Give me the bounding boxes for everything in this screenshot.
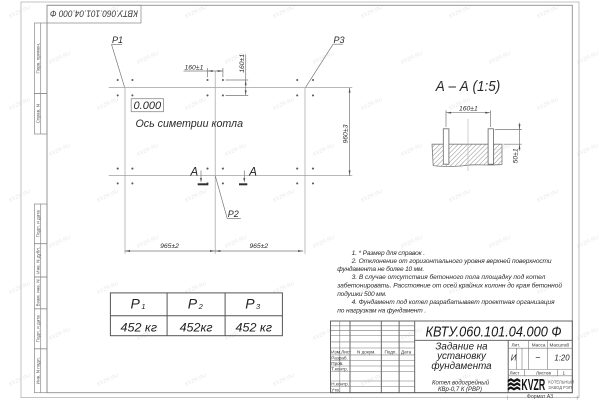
svg-text:Инв. N подл.: Инв. N подл. <box>35 357 40 384</box>
svg-text:KVZR.RU: KVZR.RU <box>400 235 423 250</box>
svg-text:Инв. N дубл.: Инв. N дубл. <box>35 247 40 274</box>
svg-text:Р1: Р1 <box>131 296 146 312</box>
svg-text:–: – <box>535 353 541 362</box>
svg-text:KVZR.RU: KVZR.RU <box>184 5 207 20</box>
svg-text:KVZR.RU: KVZR.RU <box>48 143 71 158</box>
svg-text:Р2: Р2 <box>188 296 204 312</box>
svg-text:KVZR.RU: KVZR.RU <box>400 51 423 66</box>
svg-text:KVZR.RU: KVZR.RU <box>272 97 295 112</box>
svg-text:KVZR.RU: KVZR.RU <box>136 235 159 250</box>
svg-text:KVZR.RU: KVZR.RU <box>576 327 599 342</box>
svg-text:KVZR.RU: KVZR.RU <box>400 327 423 342</box>
svg-text:А – А (1:5): А – А (1:5) <box>435 79 500 95</box>
svg-text:Н.контр.: Н.контр. <box>331 381 349 386</box>
svg-text:KVZR.RU: KVZR.RU <box>184 97 207 112</box>
svg-text:Подп.: Подп. <box>385 349 397 354</box>
svg-text:А: А <box>190 167 199 179</box>
svg-text:И: И <box>511 354 517 363</box>
svg-text:KVZR.RU: KVZR.RU <box>536 5 559 20</box>
svg-text:забетонировать. Расстояние от: забетонировать. Расстояние от осей крайн… <box>336 282 562 290</box>
svg-text:Р3: Р3 <box>245 296 261 312</box>
svg-text:50±1: 50±1 <box>513 148 520 163</box>
svg-text:KVZR.RU: KVZR.RU <box>272 189 295 204</box>
svg-text:Лит.: Лит. <box>512 343 521 348</box>
svg-text:KVZR.RU: KVZR.RU <box>8 281 31 296</box>
svg-text:KVZR.RU: KVZR.RU <box>48 51 71 66</box>
svg-text:KVZR.RU: KVZR.RU <box>576 143 599 158</box>
svg-text:4. Фундамент под котел разраба: 4. Фундамент под котел разрабатывает про… <box>352 298 555 306</box>
svg-text:Изм.Лист: Изм.Лист <box>331 349 352 354</box>
svg-text:KVZR.RU: KVZR.RU <box>576 235 599 250</box>
svg-text:KVZR.RU: KVZR.RU <box>400 143 423 158</box>
svg-text:KVZR.RU: KVZR.RU <box>8 97 31 112</box>
svg-text:KVZR.RU: KVZR.RU <box>448 5 471 20</box>
svg-text:KVZR.RU: KVZR.RU <box>96 189 119 204</box>
svg-text:KVZR.RU: KVZR.RU <box>8 189 31 204</box>
svg-text:КВр-0,7 К (РВР): КВр-0,7 К (РВР) <box>438 387 482 393</box>
svg-text:965±2: 965±2 <box>249 243 268 250</box>
svg-text:1: 1 <box>563 370 566 375</box>
svg-text:KVZR.RU: KVZR.RU <box>360 97 383 112</box>
svg-text:KVZR.RU: KVZR.RU <box>488 235 511 250</box>
svg-text:1:20: 1:20 <box>554 354 570 363</box>
svg-text:КОТЕЛЬНЫЙ: КОТЕЛЬНЫЙ <box>548 380 574 385</box>
svg-text:Листов: Листов <box>536 370 551 375</box>
svg-text:KVZR.RU: KVZR.RU <box>96 281 119 296</box>
svg-text:452кг: 452кг <box>180 320 213 334</box>
svg-text:Подп. и дата: Подп. и дата <box>35 315 40 343</box>
svg-text:Лист: Лист <box>510 370 521 375</box>
svg-text:KVZR.RU: KVZR.RU <box>576 51 599 66</box>
svg-text:KVZR.RU: KVZR.RU <box>8 373 31 388</box>
svg-text:KVZR.RU: KVZR.RU <box>272 281 295 296</box>
svg-text:160±1: 160±1 <box>239 54 246 73</box>
svg-text:Дата: Дата <box>401 349 412 354</box>
svg-text:Котел водогрейный: Котел водогрейный <box>432 379 490 386</box>
svg-text:Взам. инв. N: Взам. инв. N <box>35 279 40 306</box>
svg-text:KVZR.RU: KVZR.RU <box>272 373 295 388</box>
svg-text:Формат А3: Формат А3 <box>527 394 553 400</box>
svg-text:KVZR.RU: KVZR.RU <box>8 5 31 20</box>
svg-text:фундамента не более 10 мм.: фундамента не более 10 мм. <box>337 265 424 273</box>
svg-text:Т.контр.: Т.контр. <box>331 366 348 371</box>
svg-text:KVZR.RU: KVZR.RU <box>536 97 559 112</box>
svg-text:KVZR.RU: KVZR.RU <box>184 373 207 388</box>
svg-text:KVZR.RU: KVZR.RU <box>536 189 559 204</box>
svg-text:KVZR.RU: KVZR.RU <box>448 189 471 204</box>
svg-text:452 кг: 452 кг <box>121 320 158 334</box>
svg-text:KVZR.RU: KVZR.RU <box>224 235 247 250</box>
svg-text:КВТУ.060.101.04.000 Ф: КВТУ.060.101.04.000 Ф <box>50 9 138 19</box>
svg-text:KVZR.RU: KVZR.RU <box>312 235 335 250</box>
svg-text:Ось симетрии котла: Ось симетрии котла <box>136 118 244 130</box>
svg-text:Подп. и дата: Подп. и дата <box>35 210 40 238</box>
svg-text:160±1: 160±1 <box>459 105 478 112</box>
svg-text:подушки 500 мм.: подушки 500 мм. <box>337 290 387 298</box>
svg-text:160±1: 160±1 <box>185 65 204 72</box>
svg-text:фундамента: фундамента <box>431 361 492 372</box>
svg-text:KVZR.RU: KVZR.RU <box>136 51 159 66</box>
svg-text:KVZR.RU: KVZR.RU <box>224 143 247 158</box>
svg-text:KVZR.RU: KVZR.RU <box>312 327 335 342</box>
svg-text:KVZR.RU: KVZR.RU <box>312 143 335 158</box>
svg-text:KVZR.RU: KVZR.RU <box>96 97 119 112</box>
svg-text:KVZR.RU: KVZR.RU <box>360 373 383 388</box>
svg-text:KVZR.RU: KVZR.RU <box>96 373 119 388</box>
svg-text:3. В случае отсутствия бетонно: 3. В случае отсутствия бетонного пола пл… <box>352 273 546 281</box>
svg-text:KVZR.RU: KVZR.RU <box>184 281 207 296</box>
svg-text:P3: P3 <box>334 35 345 45</box>
svg-text:KVZR.RU: KVZR.RU <box>48 235 71 250</box>
svg-text:KVZR.RU: KVZR.RU <box>488 51 511 66</box>
svg-text:2. Отклонение от горизонтально: 2. Отклонение от горизонтального уровня … <box>351 257 552 265</box>
svg-text:Перв. примен.: Перв. примен. <box>35 43 40 74</box>
svg-text:KVZR.RU: KVZR.RU <box>272 5 295 20</box>
svg-text:0.000: 0.000 <box>134 100 162 112</box>
svg-text:Масса: Масса <box>532 343 546 348</box>
svg-text:ЗАВОД РЭП: ЗАВОД РЭП <box>548 385 571 390</box>
svg-text:452 кг: 452 кг <box>236 320 273 334</box>
svg-text:по нагрузкам на фундамент .: по нагрузкам на фундамент . <box>337 306 426 314</box>
svg-text:N докум.: N докум. <box>357 349 376 354</box>
svg-text:KVZR.RU: KVZR.RU <box>136 143 159 158</box>
svg-text:Утв.: Утв. <box>331 387 340 392</box>
svg-text:Справ. N: Справ. N <box>35 104 40 123</box>
svg-text:1. * Размер для справок .: 1. * Размер для справок . <box>352 249 426 257</box>
svg-text:KVZR: KVZR <box>521 377 545 394</box>
svg-text:Масштаб: Масштаб <box>550 343 570 348</box>
svg-text:P2: P2 <box>228 209 239 219</box>
svg-text:KVZR.RU: KVZR.RU <box>360 189 383 204</box>
svg-text:KVZR.RU: KVZR.RU <box>48 327 71 342</box>
svg-text:P1: P1 <box>112 35 123 45</box>
svg-text:960±3: 960±3 <box>342 124 349 143</box>
svg-text:Разраб.: Разраб. <box>331 355 348 360</box>
svg-text:Пров.: Пров. <box>331 361 343 366</box>
svg-text:KVZR.RU: KVZR.RU <box>184 189 207 204</box>
svg-text:KVZR.RU: KVZR.RU <box>360 5 383 20</box>
svg-text:КВТУ.060.101.04.000 Ф: КВТУ.060.101.04.000 Ф <box>426 323 562 340</box>
svg-text:965±2: 965±2 <box>160 243 179 250</box>
svg-text:А: А <box>248 167 257 179</box>
